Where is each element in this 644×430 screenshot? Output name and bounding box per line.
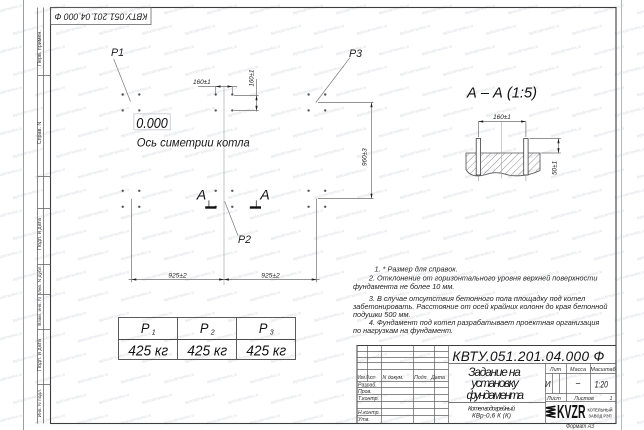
svg-text:teploobmenka.ru: teploobmenka.ru: [421, 207, 453, 220]
svg-text:teploobmenka.ru: teploobmenka.ru: [593, 84, 625, 97]
svg-text:teploobmenka.ru: teploobmenka.ru: [98, 105, 130, 118]
svg-text:teploobmenka.ru: teploobmenka.ru: [163, 43, 195, 56]
svg-text:teploobmenka.ru: teploobmenka.ru: [313, 23, 345, 36]
svg-text:teploobmenka.ru: teploobmenka.ru: [12, 105, 44, 118]
svg-text:teploobmenka.ru: teploobmenka.ru: [0, 43, 23, 56]
svg-text:teploobmenka.ru: teploobmenka.ru: [77, 371, 109, 384]
svg-text:P1: P1: [111, 47, 124, 59]
svg-text:teploobmenka.ru: teploobmenka.ru: [55, 64, 87, 77]
svg-text:teploobmenka.ru: teploobmenka.ru: [0, 351, 1, 364]
svg-text:teploobmenka.ru: teploobmenka.ru: [55, 392, 87, 405]
svg-text:teploobmenka.ru: teploobmenka.ru: [378, 43, 410, 56]
svg-text:P: P: [200, 320, 209, 336]
svg-text:teploobmenka.ru: teploobmenka.ru: [593, 289, 625, 302]
svg-text:teploobmenka.ru: teploobmenka.ru: [399, 23, 431, 36]
svg-text:teploobmenka.ru: teploobmenka.ru: [206, 2, 238, 15]
svg-text:teploobmenka.ru: teploobmenka.ru: [292, 289, 324, 302]
svg-text:teploobmenka.ru: teploobmenka.ru: [0, 84, 23, 97]
svg-text:960±3: 960±3: [362, 148, 369, 166]
svg-text:teploobmenka.ru: teploobmenka.ru: [163, 207, 195, 220]
svg-text:teploobmenka.ru: teploobmenka.ru: [184, 269, 216, 282]
svg-text:teploobmenka.ru: teploobmenka.ru: [636, 43, 644, 56]
svg-text:teploobmenka.ru: teploobmenka.ru: [292, 43, 324, 56]
svg-text:Т.контр.: Т.контр.: [358, 396, 379, 402]
svg-text:teploobmenka.ru: teploobmenka.ru: [98, 310, 130, 323]
svg-text:teploobmenka.ru: teploobmenka.ru: [614, 269, 644, 282]
svg-text:teploobmenka.ru: teploobmenka.ru: [206, 166, 238, 179]
svg-text:teploobmenka.ru: teploobmenka.ru: [313, 105, 345, 118]
svg-text:teploobmenka.ru: teploobmenka.ru: [313, 187, 345, 200]
svg-text:Ось симетрии котла: Ось симетрии котла: [137, 135, 250, 149]
svg-text:teploobmenka.ru: teploobmenka.ru: [270, 228, 302, 241]
svg-text:teploobmenka.ru: teploobmenka.ru: [0, 289, 23, 302]
svg-text:teploobmenka.ru: teploobmenka.ru: [356, 23, 388, 36]
svg-text:Подп. и дата: Подп. и дата: [37, 218, 43, 250]
svg-text:teploobmenka.ru: teploobmenka.ru: [249, 248, 281, 261]
svg-text:teploobmenka.ru: teploobmenka.ru: [98, 187, 130, 200]
svg-text:А – А (1:5): А – А (1:5): [466, 84, 537, 101]
svg-text:teploobmenka.ru: teploobmenka.ru: [593, 166, 625, 179]
svg-text:teploobmenka.ru: teploobmenka.ru: [378, 166, 410, 179]
svg-text:Инв. N подл.: Инв. N подл.: [37, 389, 43, 418]
svg-text:teploobmenka.ru: teploobmenka.ru: [184, 105, 216, 118]
svg-text:teploobmenka.ru: teploobmenka.ru: [0, 146, 1, 159]
svg-text:teploobmenka.ru: teploobmenka.ru: [571, 23, 603, 36]
svg-text:teploobmenka.ru: teploobmenka.ru: [163, 166, 195, 179]
svg-text:teploobmenka.ru: teploobmenka.ru: [184, 23, 216, 36]
svg-text:teploobmenka.ru: teploobmenka.ru: [571, 64, 603, 77]
svg-text:teploobmenka.ru: teploobmenka.ru: [593, 207, 625, 220]
svg-text:teploobmenka.ru: teploobmenka.ru: [528, 228, 560, 241]
svg-text:425 кг: 425 кг: [187, 344, 227, 360]
svg-text:teploobmenka.ru: teploobmenka.ru: [636, 166, 644, 179]
svg-text:teploobmenka.ru: teploobmenka.ru: [464, 207, 496, 220]
svg-text:teploobmenka.ru: teploobmenka.ru: [313, 351, 345, 364]
svg-text:teploobmenka.ru: teploobmenka.ru: [98, 146, 130, 159]
svg-text:teploobmenka.ru: teploobmenka.ru: [77, 43, 109, 56]
svg-text:teploobmenka.ru: teploobmenka.ru: [636, 289, 644, 302]
svg-text:teploobmenka.ru: teploobmenka.ru: [0, 330, 23, 343]
svg-text:teploobmenka.ru: teploobmenka.ru: [0, 371, 23, 384]
svg-text:teploobmenka.ru: teploobmenka.ru: [335, 84, 367, 97]
svg-text:160±1: 160±1: [249, 70, 256, 87]
svg-text:1:20: 1:20: [595, 378, 609, 389]
svg-text:teploobmenka.ru: teploobmenka.ru: [270, 392, 302, 405]
svg-text:Котел водогрейный: Котел водогрейный: [468, 405, 515, 413]
svg-text:925±2: 925±2: [261, 272, 280, 279]
svg-text:teploobmenka.ru: teploobmenka.ru: [227, 23, 259, 36]
svg-text:teploobmenka.ru: teploobmenka.ru: [528, 23, 560, 36]
svg-text:teploobmenka.ru: teploobmenka.ru: [313, 269, 345, 282]
svg-text:teploobmenka.ru: teploobmenka.ru: [98, 228, 130, 241]
svg-text:925±2: 925±2: [168, 272, 187, 279]
svg-text:teploobmenka.ru: teploobmenka.ru: [550, 43, 582, 56]
svg-text:teploobmenka.ru: teploobmenka.ru: [0, 228, 1, 241]
svg-text:1. * Размер для справок.: 1. * Размер для справок.: [375, 264, 458, 273]
svg-text:teploobmenka.ru: teploobmenka.ru: [77, 207, 109, 220]
svg-text:teploobmenka.ru: teploobmenka.ru: [313, 392, 345, 405]
svg-text:Справ. N: Справ. N: [37, 122, 43, 145]
svg-text:P3: P3: [349, 48, 362, 60]
svg-text:teploobmenka.ru: teploobmenka.ru: [12, 146, 44, 159]
svg-text:P: P: [141, 320, 150, 336]
svg-text:teploobmenka.ru: teploobmenka.ru: [141, 392, 173, 405]
svg-text:teploobmenka.ru: teploobmenka.ru: [292, 166, 324, 179]
svg-text:teploobmenka.ru: teploobmenka.ru: [507, 125, 539, 138]
svg-text:teploobmenka.ru: teploobmenka.ru: [77, 125, 109, 138]
svg-text:425 кг: 425 кг: [128, 344, 168, 360]
svg-text:teploobmenka.ru: teploobmenka.ru: [249, 2, 281, 15]
svg-text:Масштаб: Масштаб: [590, 367, 616, 373]
svg-text:teploobmenka.ru: teploobmenka.ru: [249, 125, 281, 138]
svg-text:teploobmenka.ru: teploobmenka.ru: [77, 248, 109, 261]
svg-text:teploobmenka.ru: teploobmenka.ru: [421, 84, 453, 97]
svg-text:teploobmenka.ru: teploobmenka.ru: [442, 228, 474, 241]
svg-text:Утв.: Утв.: [358, 417, 370, 423]
svg-text:teploobmenka.ru: teploobmenka.ru: [550, 125, 582, 138]
svg-text:teploobmenka.ru: teploobmenka.ru: [399, 146, 431, 159]
svg-text:teploobmenka.ru: teploobmenka.ru: [0, 207, 23, 220]
svg-text:teploobmenka.ru: teploobmenka.ru: [270, 105, 302, 118]
svg-text:teploobmenka.ru: teploobmenka.ru: [292, 330, 324, 343]
svg-text:teploobmenka.ru: teploobmenka.ru: [120, 166, 152, 179]
svg-text:teploobmenka.ru: teploobmenka.ru: [184, 228, 216, 241]
svg-text:KVZR: KVZR: [557, 402, 586, 422]
svg-text:teploobmenka.ru: teploobmenka.ru: [163, 330, 195, 343]
svg-text:teploobmenka.ru: teploobmenka.ru: [571, 228, 603, 241]
svg-text:teploobmenka.ru: teploobmenka.ru: [378, 125, 410, 138]
svg-text:teploobmenka.ru: teploobmenka.ru: [163, 84, 195, 97]
svg-text:teploobmenka.ru: teploobmenka.ru: [399, 228, 431, 241]
svg-text:teploobmenka.ru: teploobmenka.ru: [550, 330, 582, 343]
svg-text:teploobmenka.ru: teploobmenka.ru: [120, 371, 152, 384]
svg-text:teploobmenka.ru: teploobmenka.ru: [141, 228, 173, 241]
svg-text:teploobmenka.ru: teploobmenka.ru: [442, 23, 474, 36]
svg-text:teploobmenka.ru: teploobmenka.ru: [571, 187, 603, 200]
svg-text:teploobmenka.ru: teploobmenka.ru: [507, 2, 539, 15]
svg-text:teploobmenka.ru: teploobmenka.ru: [141, 64, 173, 77]
svg-text:teploobmenka.ru: teploobmenka.ru: [464, 2, 496, 15]
svg-text:160±1: 160±1: [493, 114, 511, 121]
svg-text:teploobmenka.ru: teploobmenka.ru: [120, 207, 152, 220]
svg-text:teploobmenka.ru: teploobmenka.ru: [335, 166, 367, 179]
svg-text:teploobmenka.ru: teploobmenka.ru: [593, 43, 625, 56]
svg-text:P2: P2: [238, 234, 251, 246]
svg-text:teploobmenka.ru: teploobmenka.ru: [464, 43, 496, 56]
svg-text:teploobmenka.ru: teploobmenka.ru: [528, 105, 560, 118]
svg-text:teploobmenka.ru: teploobmenka.ru: [98, 269, 130, 282]
svg-text:teploobmenka.ru: teploobmenka.ru: [55, 146, 87, 159]
svg-text:Разраб.: Разраб.: [358, 383, 377, 389]
svg-text:teploobmenka.ru: teploobmenka.ru: [55, 228, 87, 241]
svg-text:teploobmenka.ru: teploobmenka.ru: [485, 23, 517, 36]
svg-text:Подп. и дата: Подп. и дата: [37, 339, 43, 371]
svg-text:teploobmenka.ru: teploobmenka.ru: [356, 64, 388, 77]
svg-text:teploobmenka.ru: teploobmenka.ru: [421, 43, 453, 56]
svg-text:teploobmenka.ru: teploobmenka.ru: [614, 64, 644, 77]
svg-text:teploobmenka.ru: teploobmenka.ru: [292, 125, 324, 138]
svg-text:teploobmenka.ru: teploobmenka.ru: [77, 330, 109, 343]
svg-text:teploobmenka.ru: teploobmenka.ru: [120, 289, 152, 302]
svg-text:teploobmenka.ru: teploobmenka.ru: [0, 166, 23, 179]
svg-text:teploobmenka.ru: teploobmenka.ru: [593, 248, 625, 261]
svg-text:teploobmenka.ru: teploobmenka.ru: [528, 64, 560, 77]
svg-text:КОТЕЛЬНЫЙ: КОТЕЛЬНЫЙ: [588, 406, 614, 413]
svg-text:Формат А3: Формат А3: [566, 423, 594, 430]
svg-text:P: P: [259, 320, 268, 336]
svg-text:teploobmenka.ru: teploobmenka.ru: [335, 2, 367, 15]
svg-text:teploobmenka.ru: teploobmenka.ru: [55, 269, 87, 282]
svg-text:Пров.: Пров.: [358, 389, 372, 395]
svg-text:teploobmenka.ru: teploobmenka.ru: [442, 105, 474, 118]
svg-text:teploobmenka.ru: teploobmenka.ru: [184, 392, 216, 405]
svg-text:teploobmenka.ru: teploobmenka.ru: [614, 105, 644, 118]
svg-text:teploobmenka.ru: teploobmenka.ru: [571, 105, 603, 118]
svg-text:teploobmenka.ru: teploobmenka.ru: [356, 187, 388, 200]
svg-text:teploobmenka.ru: teploobmenka.ru: [335, 125, 367, 138]
svg-text:teploobmenka.ru: teploobmenka.ru: [0, 125, 23, 138]
svg-text:teploobmenka.ru: teploobmenka.ru: [636, 412, 644, 425]
svg-text:А: А: [196, 188, 207, 203]
svg-text:teploobmenka.ru: teploobmenka.ru: [421, 2, 453, 15]
svg-text:teploobmenka.ru: teploobmenka.ru: [163, 248, 195, 261]
svg-text:teploobmenka.ru: teploobmenka.ru: [356, 228, 388, 241]
svg-text:teploobmenka.ru: teploobmenka.ru: [399, 392, 431, 405]
svg-text:1: 1: [152, 330, 156, 337]
svg-text:teploobmenka.ru: teploobmenka.ru: [507, 330, 539, 343]
svg-text:teploobmenka.ru: teploobmenka.ru: [249, 166, 281, 179]
svg-text:teploobmenka.ru: teploobmenka.ru: [206, 289, 238, 302]
svg-text:ЗАВОД РЭП: ЗАВОД РЭП: [589, 414, 613, 419]
svg-text:teploobmenka.ru: teploobmenka.ru: [507, 248, 539, 261]
svg-text:teploobmenka.ru: teploobmenka.ru: [442, 187, 474, 200]
svg-text:teploobmenka.ru: teploobmenka.ru: [636, 371, 644, 384]
svg-text:teploobmenka.ru: teploobmenka.ru: [507, 207, 539, 220]
svg-text:teploobmenka.ru: teploobmenka.ru: [0, 392, 1, 405]
svg-text:teploobmenka.ru: teploobmenka.ru: [249, 207, 281, 220]
svg-text:teploobmenka.ru: teploobmenka.ru: [464, 248, 496, 261]
svg-text:teploobmenka.ru: teploobmenka.ru: [55, 187, 87, 200]
svg-text:teploobmenka.ru: teploobmenka.ru: [636, 125, 644, 138]
svg-text:teploobmenka.ru: teploobmenka.ru: [292, 207, 324, 220]
svg-text:Инв. N дубл.: Инв. N дубл.: [37, 265, 43, 294]
svg-text:teploobmenka.ru: teploobmenka.ru: [163, 289, 195, 302]
svg-text:teploobmenka.ru: teploobmenka.ru: [0, 412, 23, 425]
svg-text:teploobmenka.ru: teploobmenka.ru: [120, 43, 152, 56]
svg-text:teploobmenka.ru: teploobmenka.ru: [292, 371, 324, 384]
svg-text:N докум.: N докум.: [383, 375, 404, 381]
svg-text:фундамента: фундамента: [467, 388, 525, 402]
svg-text:teploobmenka.ru: teploobmenka.ru: [0, 23, 1, 36]
svg-text:teploobmenka.ru: teploobmenka.ru: [593, 330, 625, 343]
svg-text:teploobmenka.ru: teploobmenka.ru: [636, 330, 644, 343]
svg-text:teploobmenka.ru: teploobmenka.ru: [335, 289, 367, 302]
svg-text:teploobmenka.ru: teploobmenka.ru: [550, 248, 582, 261]
svg-text:teploobmenka.ru: teploobmenka.ru: [184, 64, 216, 77]
svg-text:teploobmenka.ru: teploobmenka.ru: [141, 187, 173, 200]
svg-text:teploobmenka.ru: teploobmenka.ru: [485, 228, 517, 241]
svg-text:teploobmenka.ru: teploobmenka.ru: [227, 310, 259, 323]
svg-text:teploobmenka.ru: teploobmenka.ru: [313, 146, 345, 159]
svg-text:Дата: Дата: [430, 375, 445, 381]
svg-text:teploobmenka.ru: teploobmenka.ru: [98, 392, 130, 405]
svg-text:teploobmenka.ru: teploobmenka.ru: [571, 146, 603, 159]
svg-text:teploobmenka.ru: teploobmenka.ru: [270, 23, 302, 36]
svg-text:И: И: [545, 380, 551, 389]
svg-text:teploobmenka.ru: teploobmenka.ru: [614, 228, 644, 241]
svg-text:425 кг: 425 кг: [246, 344, 286, 360]
svg-text:teploobmenka.ru: teploobmenka.ru: [0, 269, 1, 282]
svg-text:teploobmenka.ru: teploobmenka.ru: [485, 64, 517, 77]
svg-text:teploobmenka.ru: teploobmenka.ru: [98, 64, 130, 77]
svg-text:teploobmenka.ru: teploobmenka.ru: [163, 2, 195, 15]
svg-text:teploobmenka.ru: teploobmenka.ru: [550, 2, 582, 15]
svg-text:teploobmenka.ru: teploobmenka.ru: [614, 392, 644, 405]
svg-text:teploobmenka.ru: teploobmenka.ru: [378, 207, 410, 220]
svg-text:teploobmenka.ru: teploobmenka.ru: [120, 248, 152, 261]
svg-text:teploobmenka.ru: teploobmenka.ru: [55, 351, 87, 364]
svg-text:teploobmenka.ru: teploobmenka.ru: [636, 2, 644, 15]
svg-text:teploobmenka.ru: teploobmenka.ru: [227, 392, 259, 405]
svg-text:teploobmenka.ru: teploobmenka.ru: [55, 310, 87, 323]
svg-text:teploobmenka.ru: teploobmenka.ru: [270, 310, 302, 323]
svg-text:teploobmenka.ru: teploobmenka.ru: [0, 248, 23, 261]
svg-text:1: 1: [610, 396, 613, 402]
svg-text:teploobmenka.ru: teploobmenka.ru: [0, 310, 1, 323]
svg-text:teploobmenka.ru: teploobmenka.ru: [614, 146, 644, 159]
svg-text:teploobmenka.ru: teploobmenka.ru: [528, 187, 560, 200]
svg-text:teploobmenka.ru: teploobmenka.ru: [270, 146, 302, 159]
svg-text:teploobmenka.ru: teploobmenka.ru: [227, 187, 259, 200]
svg-text:teploobmenka.ru: teploobmenka.ru: [378, 248, 410, 261]
svg-text:teploobmenka.ru: teploobmenka.ru: [550, 84, 582, 97]
svg-text:teploobmenka.ru: teploobmenka.ru: [206, 207, 238, 220]
svg-text:teploobmenka.ru: teploobmenka.ru: [399, 105, 431, 118]
svg-text:teploobmenka.ru: teploobmenka.ru: [636, 248, 644, 261]
svg-text:teploobmenka.ru: teploobmenka.ru: [77, 166, 109, 179]
svg-text:teploobmenka.ru: teploobmenka.ru: [0, 187, 1, 200]
svg-text:teploobmenka.ru: teploobmenka.ru: [12, 187, 44, 200]
svg-text:teploobmenka.ru: teploobmenka.ru: [227, 269, 259, 282]
svg-text:Изм.Лист: Изм.Лист: [358, 375, 376, 381]
svg-text:160±1: 160±1: [193, 79, 211, 86]
svg-text:teploobmenka.ru: teploobmenka.ru: [614, 23, 644, 36]
svg-text:teploobmenka.ru: teploobmenka.ru: [163, 371, 195, 384]
svg-text:teploobmenka.ru: teploobmenka.ru: [593, 125, 625, 138]
svg-text:teploobmenka.ru: teploobmenka.ru: [636, 207, 644, 220]
svg-text:Н.контр.: Н.контр.: [358, 410, 380, 416]
svg-text:teploobmenka.ru: teploobmenka.ru: [292, 2, 324, 15]
svg-text:teploobmenka.ru: teploobmenka.ru: [421, 125, 453, 138]
svg-text:КВТУ.051.201.04.000 Ф: КВТУ.051.201.04.000 Ф: [452, 349, 604, 364]
svg-text:teploobmenka.ru: teploobmenka.ru: [335, 248, 367, 261]
svg-text:teploobmenka.ru: teploobmenka.ru: [507, 43, 539, 56]
svg-text:teploobmenka.ru: teploobmenka.ru: [206, 371, 238, 384]
svg-text:–: –: [575, 379, 581, 388]
svg-text:2: 2: [210, 330, 215, 337]
svg-text:teploobmenka.ru: teploobmenka.ru: [270, 187, 302, 200]
svg-text:teploobmenka.ru: teploobmenka.ru: [0, 2, 23, 15]
svg-text:teploobmenka.ru: teploobmenka.ru: [421, 248, 453, 261]
svg-text:Перв. примен.: Перв. примен.: [37, 30, 43, 66]
svg-text:50±1: 50±1: [552, 160, 559, 175]
svg-text:Подп.: Подп.: [414, 375, 428, 381]
svg-text:teploobmenka.ru: teploobmenka.ru: [98, 351, 130, 364]
svg-text:teploobmenka.ru: teploobmenka.ru: [464, 330, 496, 343]
svg-text:teploobmenka.ru: teploobmenka.ru: [292, 248, 324, 261]
svg-text:teploobmenka.ru: teploobmenka.ru: [335, 207, 367, 220]
svg-text:teploobmenka.ru: teploobmenka.ru: [249, 371, 281, 384]
svg-text:КВТУ.051.201.04.000 Ф: КВТУ.051.201.04.000 Ф: [54, 11, 147, 22]
svg-text:teploobmenka.ru: teploobmenka.ru: [0, 105, 1, 118]
svg-text:0.000: 0.000: [136, 114, 168, 131]
svg-text:teploobmenka.ru: teploobmenka.ru: [206, 248, 238, 261]
svg-text:Взам. инв. N: Взам. инв. N: [37, 297, 43, 326]
svg-text:teploobmenka.ru: teploobmenka.ru: [55, 105, 87, 118]
svg-text:teploobmenka.ru: teploobmenka.ru: [378, 84, 410, 97]
svg-text:фундамента не более 10 мм.: фундамента не более 10 мм.: [353, 282, 454, 291]
svg-text:teploobmenka.ru: teploobmenka.ru: [593, 2, 625, 15]
svg-text:Масса: Масса: [570, 367, 586, 373]
svg-text:teploobmenka.ru: teploobmenka.ru: [77, 289, 109, 302]
svg-text:3: 3: [270, 330, 274, 337]
svg-text:teploobmenka.ru: teploobmenka.ru: [0, 64, 1, 77]
svg-text:КВр-0,6 К (К): КВр-0,6 К (К): [472, 413, 511, 420]
svg-text:teploobmenka.ru: teploobmenka.ru: [399, 187, 431, 200]
svg-text:teploobmenka.ru: teploobmenka.ru: [313, 228, 345, 241]
svg-text:teploobmenka.ru: teploobmenka.ru: [421, 166, 453, 179]
svg-text:teploobmenka.ru: teploobmenka.ru: [270, 64, 302, 77]
svg-text:teploobmenka.ru: teploobmenka.ru: [464, 125, 496, 138]
svg-text:teploobmenka.ru: teploobmenka.ru: [77, 84, 109, 97]
svg-text:teploobmenka.ru: teploobmenka.ru: [249, 43, 281, 56]
svg-text:teploobmenka.ru: teploobmenka.ru: [206, 43, 238, 56]
svg-text:teploobmenka.ru: teploobmenka.ru: [550, 207, 582, 220]
svg-text:teploobmenka.ru: teploobmenka.ru: [399, 64, 431, 77]
svg-text:teploobmenka.ru: teploobmenka.ru: [442, 64, 474, 77]
svg-text:teploobmenka.ru: teploobmenka.ru: [636, 84, 644, 97]
svg-text:teploobmenka.ru: teploobmenka.ru: [614, 187, 644, 200]
svg-text:teploobmenka.ru: teploobmenka.ru: [614, 310, 644, 323]
svg-text:по нагрузкам на фундамент.: по нагрузкам на фундамент.: [353, 326, 453, 335]
svg-text:teploobmenka.ru: teploobmenka.ru: [378, 2, 410, 15]
svg-text:teploobmenka.ru: teploobmenka.ru: [313, 310, 345, 323]
svg-text:teploobmenka.ru: teploobmenka.ru: [249, 289, 281, 302]
svg-text:А: А: [259, 188, 270, 203]
svg-text:teploobmenka.ru: teploobmenka.ru: [485, 187, 517, 200]
svg-text:Лит: Лит: [549, 367, 562, 373]
svg-text:teploobmenka.ru: teploobmenka.ru: [614, 351, 644, 364]
